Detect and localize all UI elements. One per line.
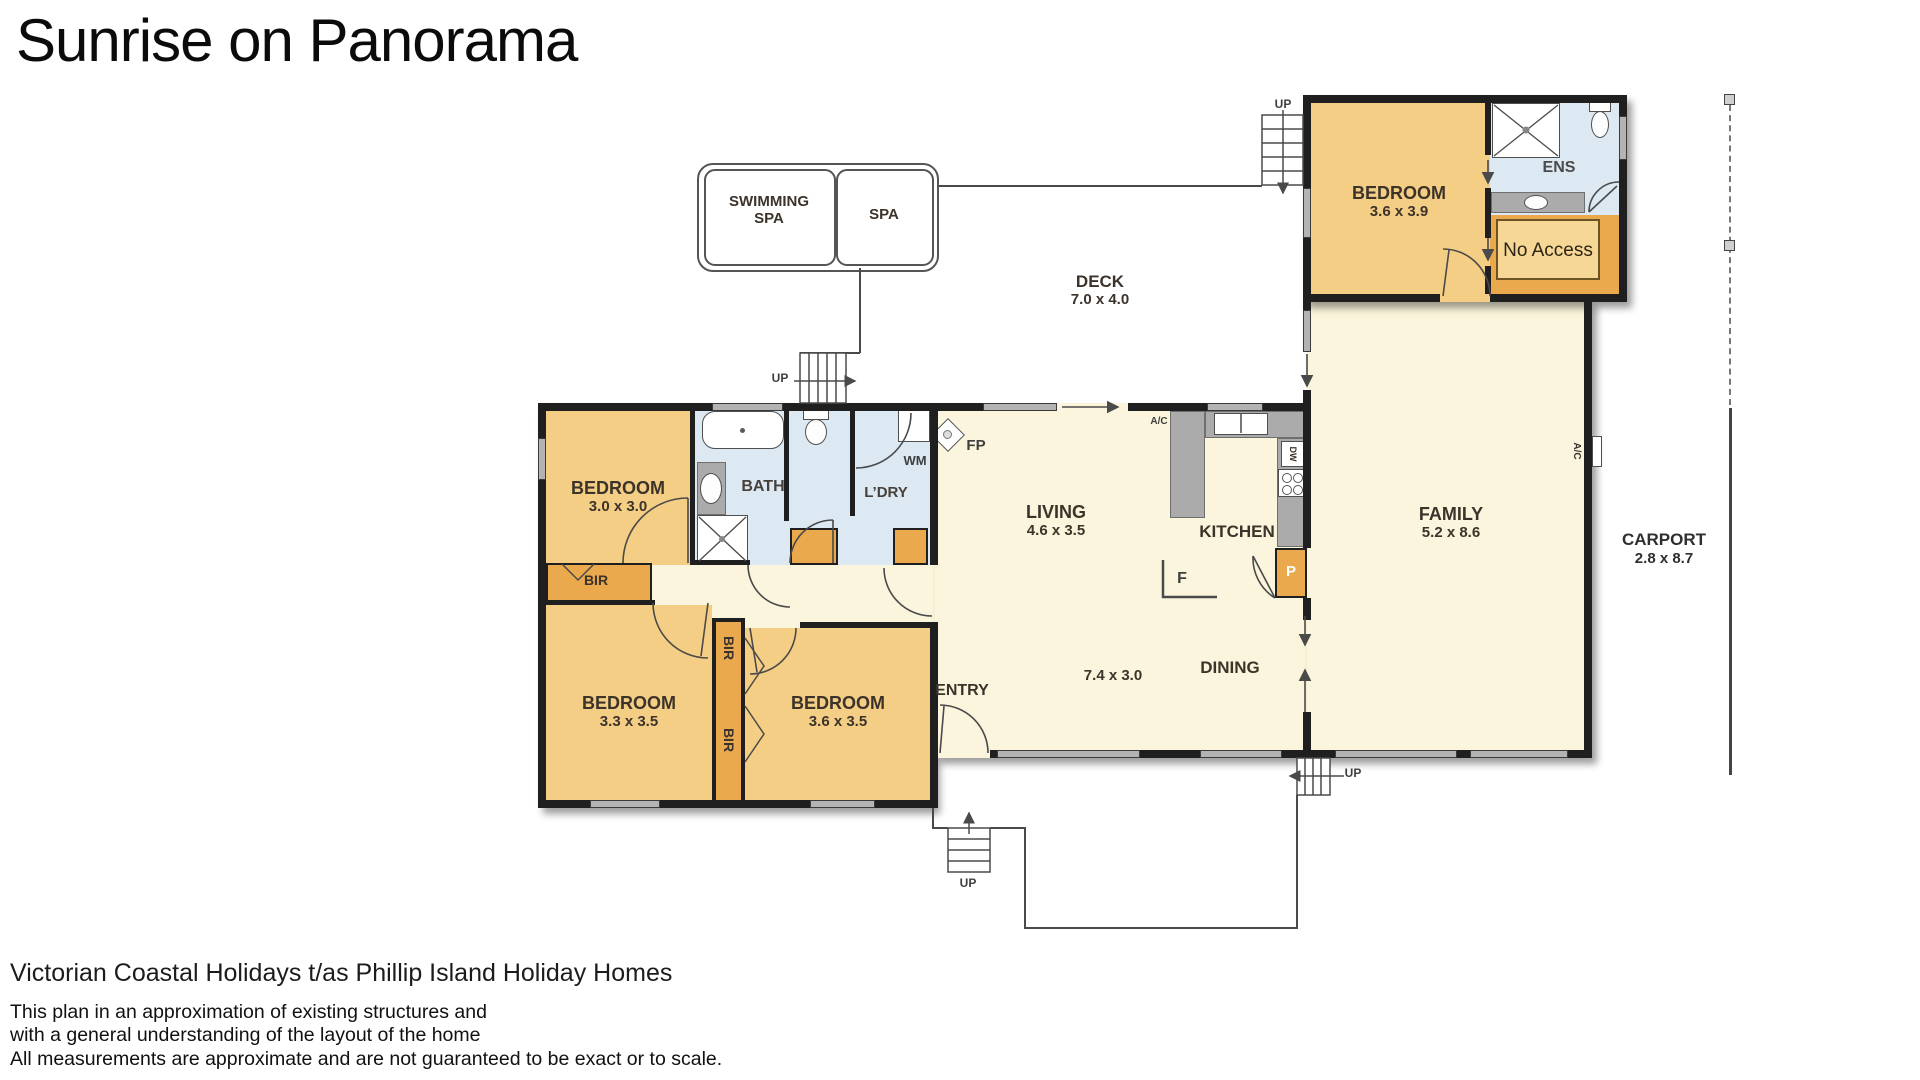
wall-ldry-west — [850, 411, 855, 516]
bir-column-label-2: BIR — [721, 728, 737, 752]
wall-bed-ens-divider-1 — [1485, 103, 1491, 155]
ac-unit — [1592, 436, 1602, 467]
bedroom-36-label: BEDROOM — [791, 693, 885, 714]
bir-column-west — [712, 622, 716, 800]
washing-machine — [898, 408, 930, 442]
floorplan-page: Sunrise on Panorama — [0, 0, 1920, 1080]
kitchen-counter-left — [1170, 411, 1205, 518]
deck-stairs-top — [1262, 110, 1303, 193]
ac-kitchen-label: A/C — [1150, 416, 1167, 428]
window-living-top — [983, 403, 1057, 411]
fp-label: FP — [966, 437, 985, 454]
wall-unit-top — [1303, 95, 1627, 103]
wall-family-west-2 — [1303, 390, 1311, 403]
living-label: LIVING — [1026, 502, 1086, 523]
window-unit-east — [1619, 116, 1627, 160]
wall-bath-west — [690, 411, 695, 565]
wall-entry-side — [930, 758, 938, 808]
no-access-label: No Access — [1503, 240, 1593, 262]
wall-family-west-4 — [1303, 598, 1311, 620]
wc-toilet-bowl — [805, 419, 827, 445]
pantry-label: P — [1286, 563, 1296, 580]
ens-toilet-bowl — [1591, 111, 1609, 138]
carport-dims: 2.8 x 8.7 — [1635, 550, 1693, 567]
ac-family-label: A/C — [1570, 442, 1582, 459]
fridge-label: F — [1177, 570, 1187, 588]
bathtub-plug — [740, 428, 745, 433]
window-dining-bottom-1 — [997, 750, 1140, 758]
footer-disclaimer-line2: with a general understanding of the layo… — [10, 1024, 522, 1047]
bir-strip-label: BIR — [584, 572, 608, 588]
swimming-spa-label: SWIMMING SPA — [714, 193, 824, 228]
ens-label: ENS — [1543, 159, 1576, 177]
window-kitchen-top — [1207, 403, 1263, 411]
kitchen-sink-divider — [1240, 414, 1242, 433]
wall-wc-west — [784, 411, 789, 521]
deck-label: DECK — [1076, 272, 1124, 292]
fireplace-dot — [943, 430, 952, 439]
window-bed36-bottom — [810, 800, 875, 808]
wc-cupboard — [790, 528, 838, 565]
window-family-bottom-1 — [1335, 750, 1457, 758]
carport-post-top — [1724, 94, 1735, 105]
unit-door-gap — [1440, 294, 1490, 302]
up-label-rear-stairs: UP — [1345, 767, 1362, 781]
bedroom-33-dims: 3.3 x 3.5 — [600, 713, 658, 730]
bath-shower — [697, 515, 748, 563]
wall-ab-divider-upper — [930, 403, 938, 565]
page-title: Sunrise on Panorama — [16, 6, 577, 75]
deck-door-opening — [1057, 403, 1128, 411]
footer-heading: Victorian Coastal Holidays t/as Phillip … — [10, 959, 672, 988]
window-bed33-bottom — [590, 800, 660, 808]
window-left-wall — [538, 438, 546, 480]
rear-porch-stairs — [1290, 758, 1344, 795]
ens-basin — [1524, 195, 1548, 210]
bedroom-33-label: BEDROOM — [582, 693, 676, 714]
entry-porch-stairs — [948, 813, 990, 872]
window-family-deck — [1303, 310, 1311, 352]
up-label-deck-stairs: UP — [1275, 98, 1292, 112]
bir-column-east — [741, 622, 745, 800]
up-label-entry-stairs: UP — [960, 877, 977, 891]
living-dims: 4.6 x 3.5 — [1027, 522, 1085, 539]
bedroom-36-dims: 3.6 x 3.5 — [809, 713, 867, 730]
wall-bed-ens-divider-3 — [1485, 266, 1491, 294]
bir-column-label-1: BIR — [721, 636, 737, 660]
wall-family-east — [1584, 300, 1592, 758]
wall-family-west-3 — [1303, 403, 1311, 548]
kitchen-label: KITCHEN — [1199, 522, 1275, 542]
wall-bed-ens-divider-2 — [1485, 188, 1491, 238]
central-floor — [935, 403, 1307, 758]
window-family-bottom-2 — [1470, 750, 1568, 758]
burner-icon — [1282, 485, 1292, 495]
wm-label: WM — [903, 454, 926, 469]
footer-disclaimer-line1: This plan in an approximation of existin… — [10, 1001, 522, 1024]
bedroom-30-dims: 3.0 x 3.0 — [589, 498, 647, 515]
carport-dashed-line — [1729, 105, 1731, 405]
wall-bath-south — [690, 560, 750, 565]
family-label: FAMILY — [1419, 504, 1483, 525]
living-dining-dims: 7.4 x 3.0 — [1084, 667, 1142, 684]
burner-icon — [1293, 473, 1303, 483]
burner-icon — [1282, 473, 1292, 483]
up-label-hall-stairs: UP — [772, 372, 789, 386]
entry-door-opening — [938, 750, 990, 758]
bedroom-ens-dims: 3.6 x 3.9 — [1370, 203, 1428, 220]
bedroom-ens-label: BEDROOM — [1352, 183, 1446, 204]
footer-disclaimer-line3: All measurements are approximate and are… — [10, 1048, 722, 1071]
wall-bedroom36-north — [800, 622, 930, 628]
carport-post-mid — [1724, 240, 1735, 251]
laundry-cupboard — [893, 528, 928, 565]
laundry-label: L’DRY — [864, 484, 908, 501]
porch-outline — [933, 795, 1297, 928]
carport-solid-line — [1729, 408, 1732, 775]
ens-shower — [1492, 103, 1560, 158]
bath-label: BATH — [741, 478, 784, 496]
carport-label: CARPORT — [1622, 530, 1706, 550]
hall-stairs-to-deck — [794, 353, 855, 403]
entry-label: ENTRY — [935, 682, 989, 700]
dw-label: DW — [1288, 447, 1298, 462]
wall-family-west-5 — [1303, 712, 1311, 750]
dining-label: DINING — [1200, 658, 1260, 678]
deck-dims: 7.0 x 4.0 — [1071, 291, 1129, 308]
window-dining-bottom-2 — [1200, 750, 1282, 758]
burner-icon — [1293, 485, 1303, 495]
window-bath-top — [712, 403, 783, 411]
wall-top-main — [538, 403, 1307, 411]
bath-basin — [700, 473, 722, 504]
bedroom-30-label: BEDROOM — [571, 478, 665, 499]
spa-label: SPA — [869, 206, 899, 223]
family-dims: 5.2 x 8.6 — [1422, 524, 1480, 541]
window-unit-west — [1303, 188, 1311, 238]
